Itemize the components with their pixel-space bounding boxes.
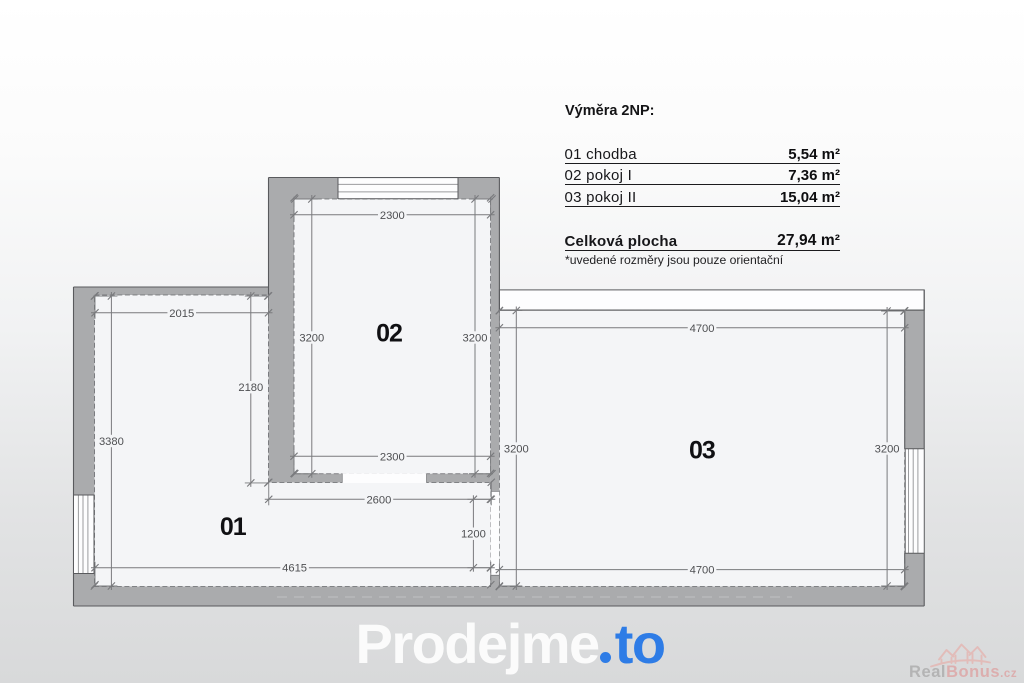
svg-text:3200: 3200 [299, 333, 324, 345]
svg-text:1200: 1200 [461, 529, 486, 541]
svg-text:4615: 4615 [282, 563, 307, 575]
svg-text:2300: 2300 [380, 451, 405, 463]
svg-text:3200: 3200 [463, 333, 488, 345]
svg-text:3200: 3200 [875, 444, 900, 456]
svg-text:4700: 4700 [690, 323, 715, 335]
svg-text:2300: 2300 [380, 210, 405, 222]
svg-text:01: 01 [220, 513, 247, 541]
svg-text:03: 03 [689, 436, 715, 464]
svg-text:3380: 3380 [99, 436, 124, 448]
svg-text:3200: 3200 [504, 444, 529, 456]
svg-text:02: 02 [376, 320, 402, 348]
svg-text:2180: 2180 [238, 382, 263, 394]
svg-text:4700: 4700 [690, 565, 715, 577]
svg-text:2015: 2015 [169, 308, 194, 320]
svg-text:2600: 2600 [366, 494, 391, 506]
